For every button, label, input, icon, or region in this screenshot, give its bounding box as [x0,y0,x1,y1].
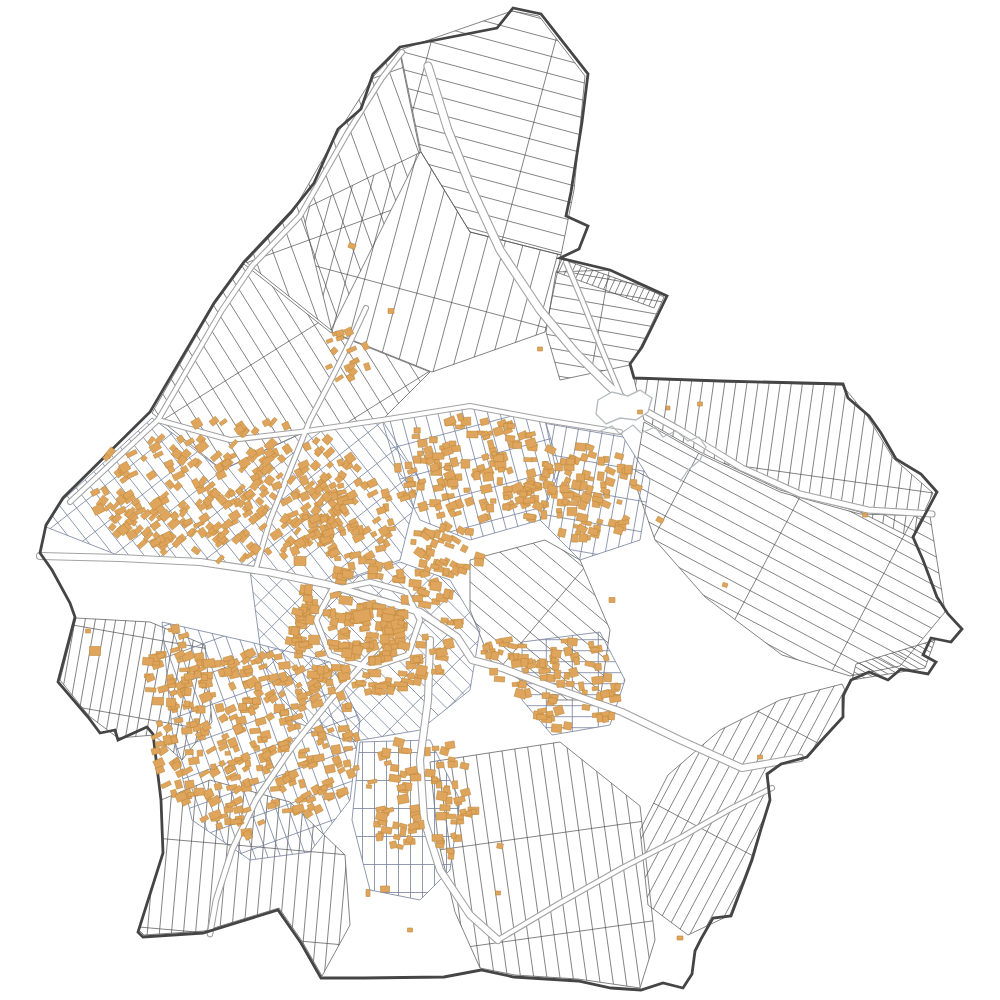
building [184,673,194,681]
building [460,544,468,552]
building [614,684,620,691]
parcel-line [0,230,286,487]
building [518,644,527,648]
parcel-line [335,131,523,431]
parcel-line [508,698,556,1000]
building [497,478,503,486]
parcel-line [777,413,969,775]
building [400,827,407,836]
building [656,516,665,524]
building [436,812,446,820]
parcel-line [632,289,975,337]
building [215,703,224,712]
building [666,406,670,410]
building [569,667,579,677]
building [331,745,341,755]
building [372,603,385,609]
road-surface [428,66,622,398]
parcel-line [416,0,532,297]
building [617,499,623,504]
building [345,703,352,709]
building [518,680,526,688]
parcel-line [359,23,663,104]
building [609,695,621,703]
parcel-line [874,464,1000,826]
building [323,793,334,800]
building [344,553,350,558]
parcel-line [241,231,498,560]
building [343,760,351,768]
building [335,556,341,561]
building [170,512,179,521]
parcel-line [792,731,948,1000]
building [582,704,590,710]
building [513,442,522,448]
building [279,551,288,560]
building [181,766,193,775]
road-casing [158,406,620,440]
road-casing [622,398,932,514]
building [567,638,577,646]
building [366,890,370,897]
parcel-line [607,632,763,925]
building [483,472,494,481]
building [576,474,584,481]
building [548,697,557,704]
building [480,418,489,426]
parcel-line [363,88,453,424]
building [163,735,172,745]
building [425,769,435,777]
building [503,504,511,511]
building [295,724,301,729]
building [573,657,579,665]
building [303,515,309,520]
parcel-line [666,663,822,956]
building [224,704,236,714]
building [282,421,291,430]
parcel-line [782,725,938,1000]
building [638,410,643,414]
building [169,690,177,697]
building [368,566,378,574]
building [388,309,394,314]
building [257,819,265,825]
building [483,644,490,651]
building [299,475,309,486]
building [338,642,349,649]
building [556,680,565,688]
building [568,501,579,505]
building [580,453,588,462]
parcel-line [724,282,772,625]
building [294,557,306,566]
building [360,625,369,631]
building [320,516,328,523]
parcel-line [302,236,606,317]
parcel-line [619,433,981,625]
parcel-line [104,719,130,1000]
parcel-line [520,696,568,1000]
building [411,539,417,544]
building [197,527,207,538]
building [380,634,389,644]
building [364,363,371,371]
road-surface [70,52,402,502]
building [523,497,535,503]
parcel-line [76,575,114,788]
parcel-hatch [588,264,980,655]
parcel-line [381,0,497,310]
building [361,341,369,350]
building [197,750,203,756]
building [218,714,228,723]
building [326,461,333,468]
building [90,647,101,656]
parcel-line [518,341,578,564]
building [305,585,313,595]
building [445,542,455,549]
building [330,347,338,355]
building [575,443,586,452]
building [384,760,392,765]
building [397,641,410,650]
building [383,561,393,571]
building [418,439,428,447]
building [677,936,683,940]
building [564,646,573,656]
building [487,440,494,449]
building [312,437,320,445]
building [146,470,157,480]
building [436,512,445,519]
building [145,688,156,693]
parcel-line [604,22,685,326]
building [553,705,564,716]
building [280,710,288,716]
building [432,453,444,460]
parcel-line [433,106,523,442]
building [394,682,407,687]
building [436,782,442,789]
building [389,841,397,849]
building [556,508,561,512]
building [401,595,408,604]
parcel-line [366,717,414,1000]
building [595,663,602,670]
parcel-line [116,721,142,1000]
building [473,471,481,480]
building [150,520,161,530]
building [390,764,399,772]
parcel-line [469,703,517,1000]
building [190,721,198,728]
building [225,751,230,755]
parcel-line [585,687,633,1000]
building [222,733,230,740]
parcel-line [598,627,754,920]
building [165,479,175,489]
building [369,657,375,665]
parcel-hatch [131,0,550,406]
building [228,682,236,691]
building [504,495,509,500]
parcel-line [232,291,550,407]
building [597,472,604,481]
building [173,482,182,491]
building [758,755,763,759]
parcel-line [187,169,505,285]
building [228,510,241,522]
building [433,484,443,491]
building [274,654,283,660]
parcel-line [571,525,933,717]
building [282,444,293,455]
parcel-line [626,268,674,611]
parcel-line [593,264,641,607]
building [422,634,429,640]
building [199,683,206,688]
building [393,737,405,748]
building [344,746,353,751]
parcel-line [456,705,504,1000]
parcel-line [331,739,357,1000]
building [537,714,547,720]
parcel-line [931,311,979,654]
building [299,698,307,706]
building [313,804,323,814]
parcel-line [96,579,134,792]
building [353,641,360,646]
building [410,774,421,781]
parcel-line [844,299,892,642]
building [441,618,449,624]
building [597,519,604,525]
building [387,518,394,526]
building [425,747,430,755]
parcel-line [351,56,654,137]
building [305,615,314,625]
building [551,649,561,658]
parcel-hatch [518,586,967,1000]
building [524,458,532,462]
building [452,781,458,789]
parcel-line [604,265,652,608]
building [90,488,100,496]
parcel-line [623,406,655,589]
parcel-line [743,705,899,998]
building [354,765,360,770]
building [496,891,501,895]
parcel-block-outline [400,11,585,255]
parcel-line [624,247,676,359]
building [185,780,195,789]
building [376,506,386,514]
building [381,748,391,758]
building [416,641,426,648]
building [456,814,464,820]
parcel-line [295,736,321,1000]
building [303,595,313,603]
parcel-line [704,684,860,977]
parcel-block-outline [246,49,420,330]
building [490,668,498,675]
parcel-line [680,318,1000,510]
building [330,618,339,627]
building [313,754,325,763]
parcel-line [166,70,282,388]
building [605,466,616,475]
building [341,648,352,658]
building [142,657,153,666]
building [520,491,527,497]
parcel-line [779,290,827,633]
building [407,673,415,680]
parcel-line [833,297,881,640]
building [498,467,505,472]
building [443,568,450,576]
building [461,459,470,468]
parcel-line [322,139,510,439]
building [309,635,320,644]
building [337,490,347,495]
parcel-line [674,330,1000,522]
building [325,364,332,370]
building [448,757,455,762]
building [255,683,261,691]
building [381,489,390,499]
building [566,458,574,465]
parcel-line [578,617,734,910]
building [337,787,349,797]
building [578,682,584,691]
parcel-line [675,669,831,962]
parcel-line [131,83,247,401]
building [417,451,423,456]
building [396,569,404,578]
building [538,708,547,714]
building [227,802,236,808]
building [523,668,529,674]
parcel-line [468,116,558,452]
parcel-line [597,235,649,346]
building [333,566,341,574]
parcel-line [17,565,55,778]
building [502,637,512,644]
building [210,450,222,461]
parcel-line [105,581,142,794]
building [171,624,180,634]
building [551,658,559,663]
building [399,823,407,829]
municipality-cadastral-map [0,0,1000,1000]
building [603,655,609,662]
building [414,428,420,434]
building [551,724,562,733]
building [490,651,499,660]
building [325,764,336,773]
building [508,643,518,649]
building [432,746,439,751]
building [328,687,336,694]
building [219,419,227,426]
building [366,559,375,564]
parcel-line [822,296,870,639]
building [385,677,392,682]
building [230,819,242,825]
building [538,347,543,351]
building [482,453,490,460]
building [432,777,438,782]
building [413,677,422,685]
building [358,556,365,564]
building [364,688,372,695]
building [440,805,451,811]
parcel-line [724,694,880,987]
parcel-line [337,105,641,186]
parcel-line [554,606,696,775]
parcel-line [193,268,450,597]
building [526,431,536,437]
parcel-line [630,250,682,361]
parcel-line [577,513,939,705]
building [588,641,594,648]
building [511,660,521,668]
building [367,779,377,784]
road-casing [428,66,622,398]
parcel-line [482,701,530,1000]
building [608,712,615,720]
building [497,843,504,849]
building [327,727,334,733]
parcel-line [242,55,332,391]
building [290,626,299,636]
cadastral-map-page [0,0,1000,1000]
building [567,681,575,686]
building [397,844,404,850]
building [576,513,588,523]
parcel-line [333,121,637,202]
building [255,717,266,726]
building [180,668,190,672]
building [451,820,457,824]
building [460,762,469,770]
building [413,595,423,601]
parcel-line [757,287,805,630]
parcel-hatch [11,565,261,814]
building [554,670,561,679]
parcel-line [695,679,851,972]
building [366,632,378,638]
parcel-line [608,240,660,351]
parcel-line [714,689,870,982]
parcel-line [579,763,872,919]
building [338,725,349,732]
building [449,441,456,446]
building [614,525,624,535]
building [597,714,603,722]
building [426,549,435,557]
parcel-line [647,410,679,593]
building [323,610,330,616]
building [567,507,577,515]
building [341,665,351,674]
parcel-line [705,272,1000,464]
building [245,551,255,559]
building [588,451,597,459]
building [393,834,400,840]
parcel-line [27,567,65,780]
